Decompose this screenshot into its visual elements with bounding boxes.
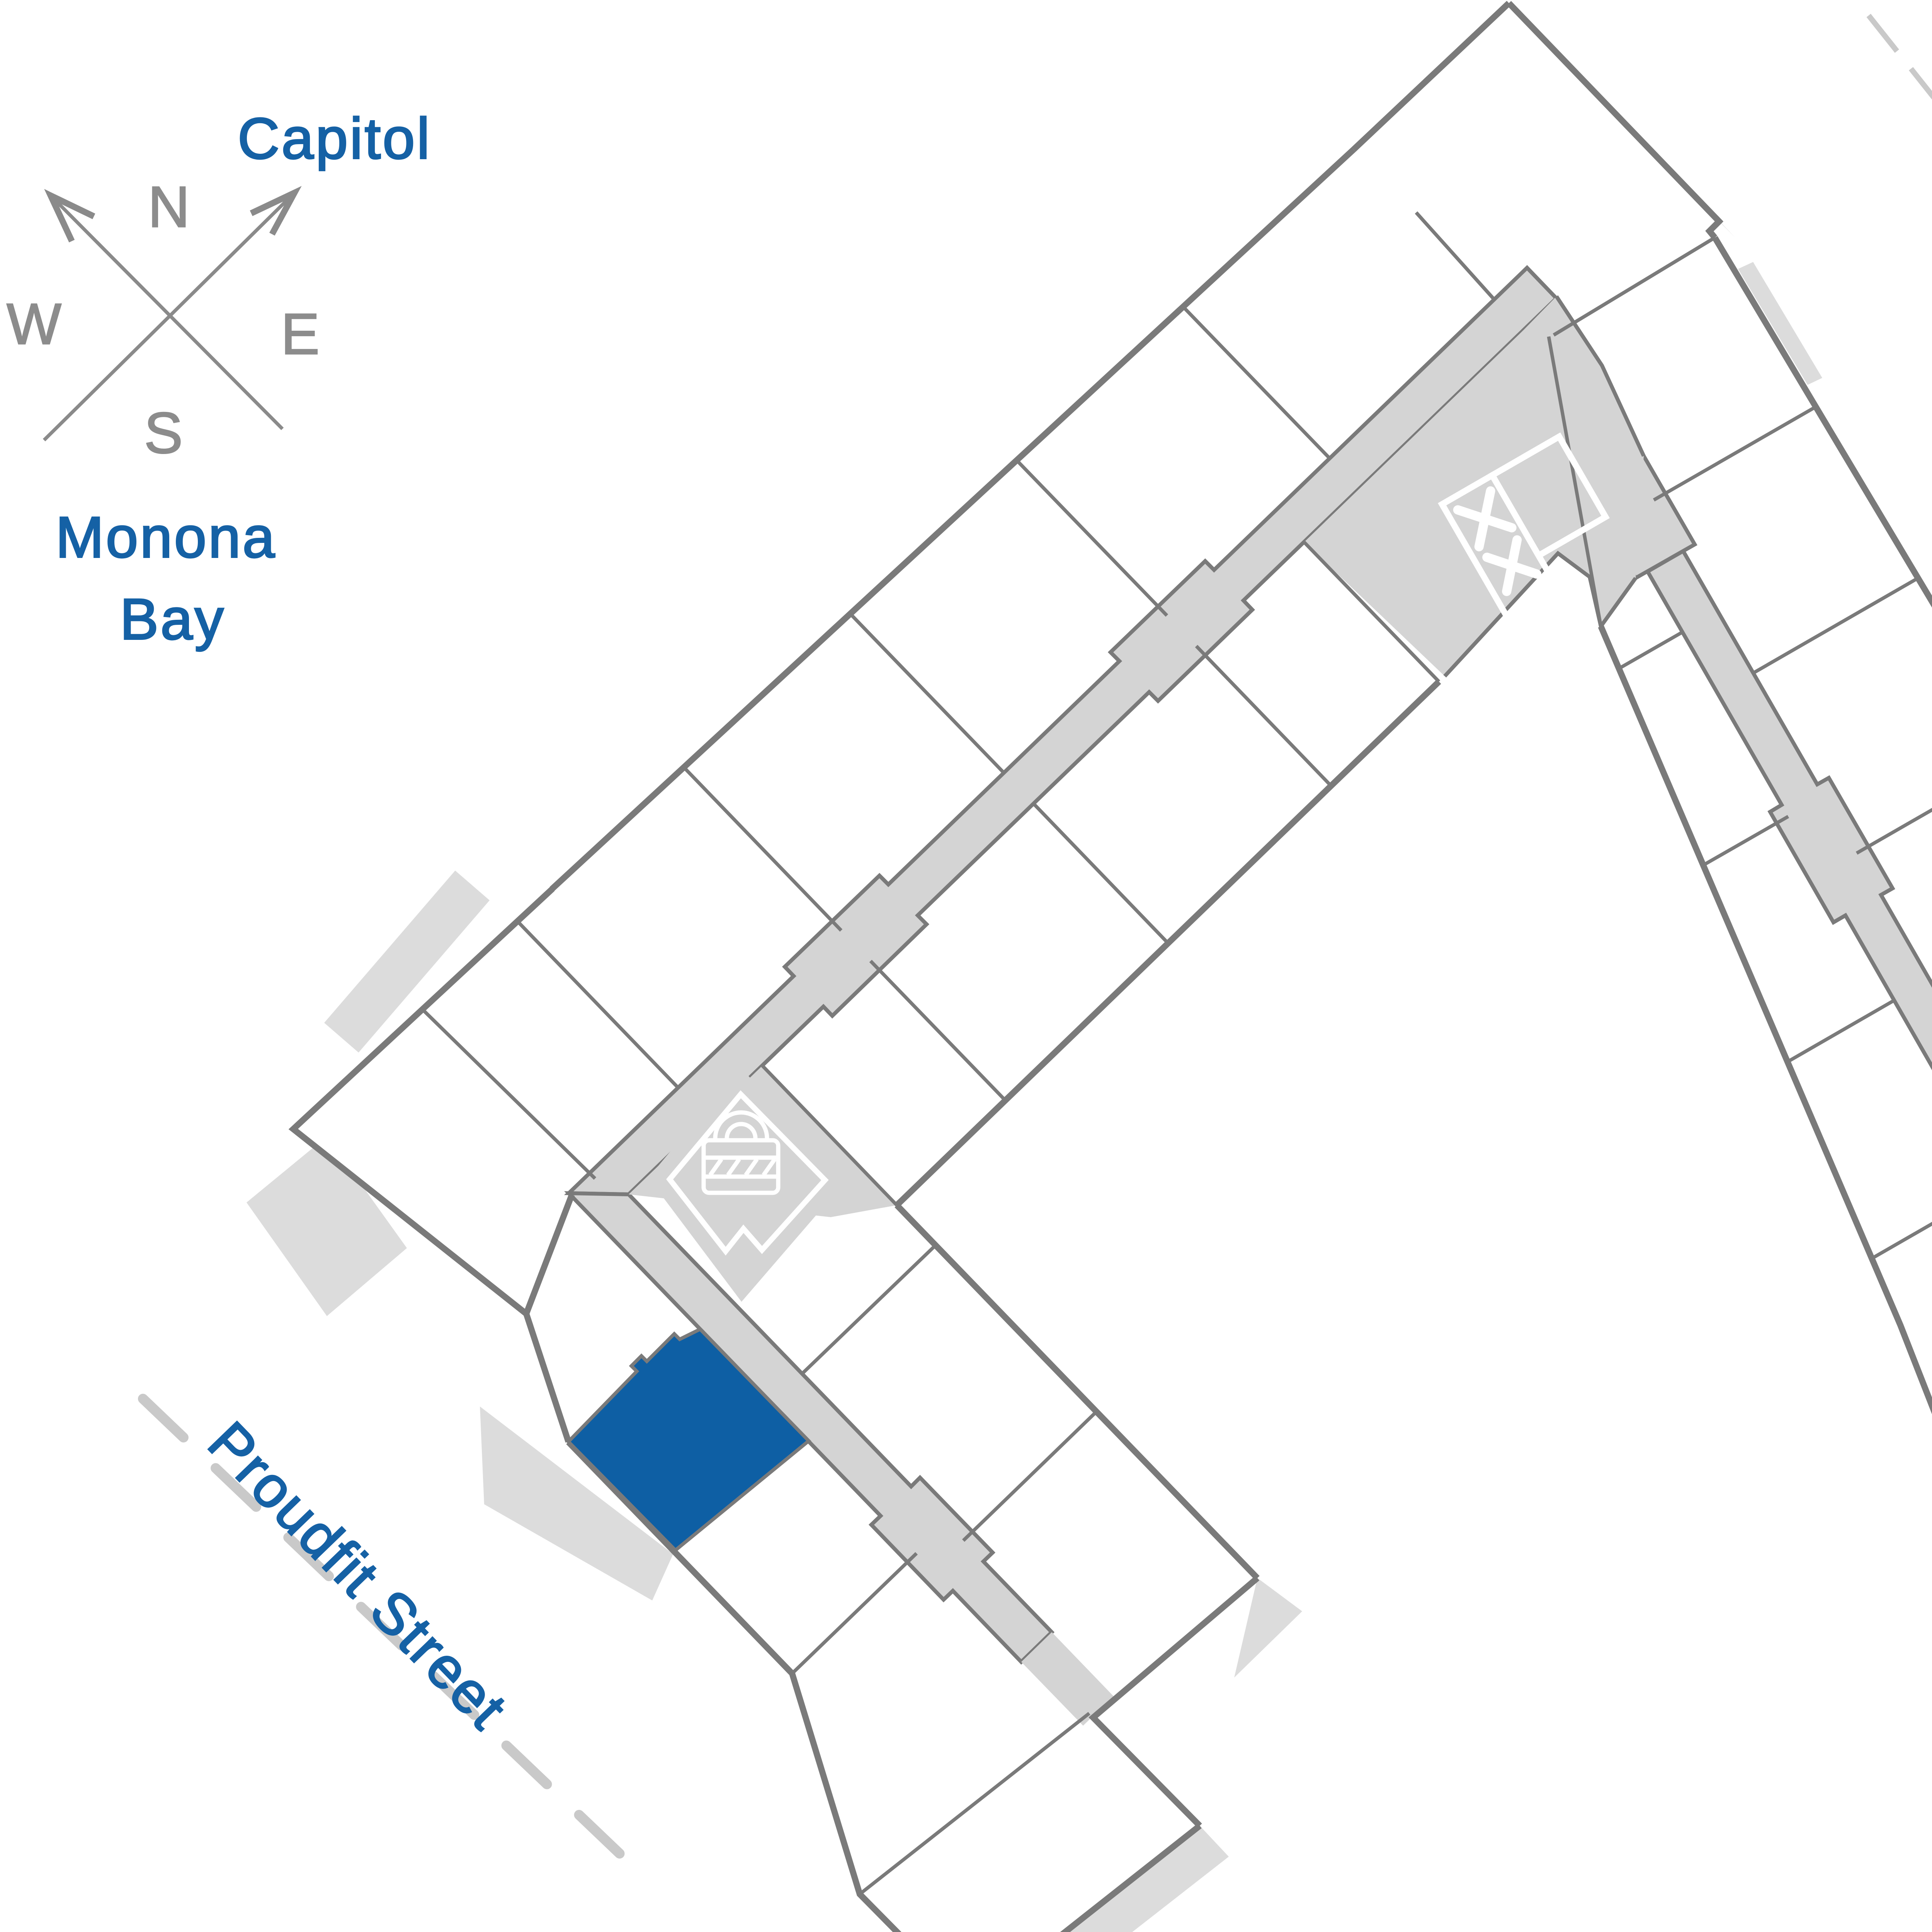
svg-text:Capitol: Capitol (238, 106, 432, 171)
svg-text:E: E (281, 301, 320, 366)
svg-text:Monona: Monona (56, 505, 277, 570)
svg-text:N: N (148, 174, 190, 239)
svg-text:Bay: Bay (120, 587, 225, 651)
svg-text:W: W (7, 291, 61, 356)
svg-text:S: S (144, 400, 183, 465)
